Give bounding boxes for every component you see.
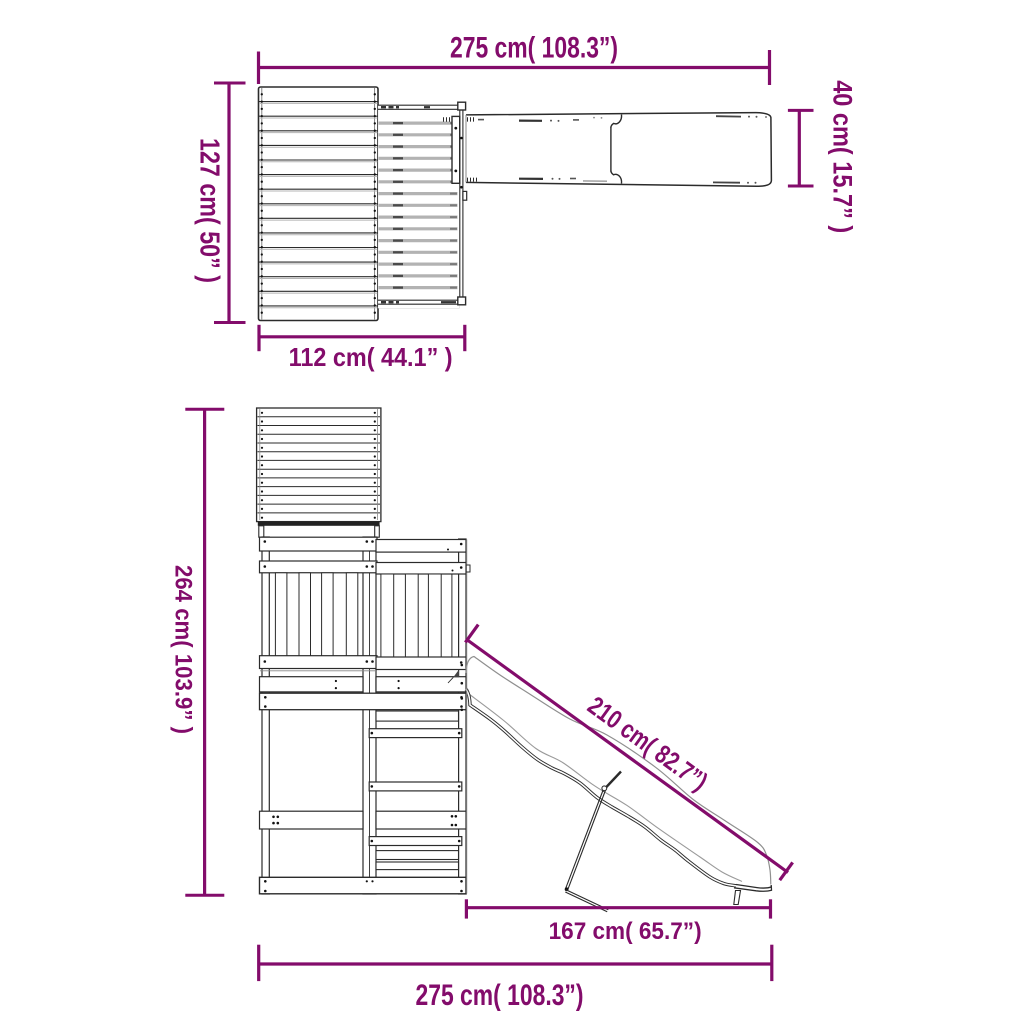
svg-text:275 cm( 108.3”): 275 cm( 108.3”) xyxy=(416,979,584,1012)
svg-text:264 cm( 103.9” ): 264 cm( 103.9” ) xyxy=(170,565,196,734)
svg-text:40 cm( 15.7” ): 40 cm( 15.7” ) xyxy=(828,80,858,233)
svg-text:127 cm( 50” ): 127 cm( 50” ) xyxy=(194,138,225,283)
svg-text:167 cm( 65.7”): 167 cm( 65.7”) xyxy=(549,918,702,945)
svg-text:112 cm( 44.1” ): 112 cm( 44.1” ) xyxy=(289,342,453,372)
svg-text:275 cm( 108.3”): 275 cm( 108.3”) xyxy=(450,31,618,64)
